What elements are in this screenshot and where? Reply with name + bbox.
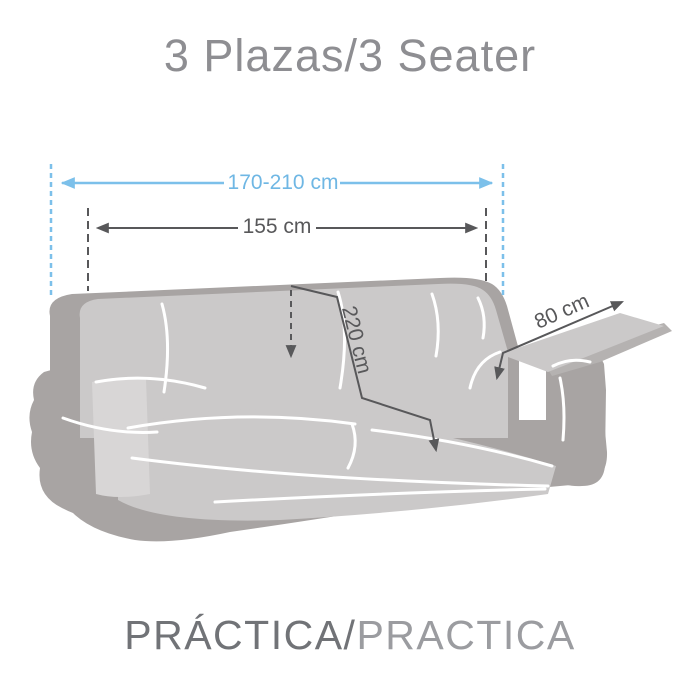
product-diagram: 3 Plazas/3 Seater 170-210 cm 155 cm 220 …	[0, 0, 700, 700]
page-title: 3 Plazas/3 Seater	[0, 30, 700, 82]
cover-width-label: 155 cm	[243, 215, 312, 239]
cover-armrest-protector	[92, 378, 150, 497]
total-width-label: 170-210 cm	[228, 171, 339, 195]
product-line-name-spanish: PRÁCTICA/	[124, 612, 356, 658]
product-line-name-english: PRACTICA	[356, 612, 575, 658]
product-line-name: PRÁCTICA/PRACTICA	[0, 612, 700, 659]
